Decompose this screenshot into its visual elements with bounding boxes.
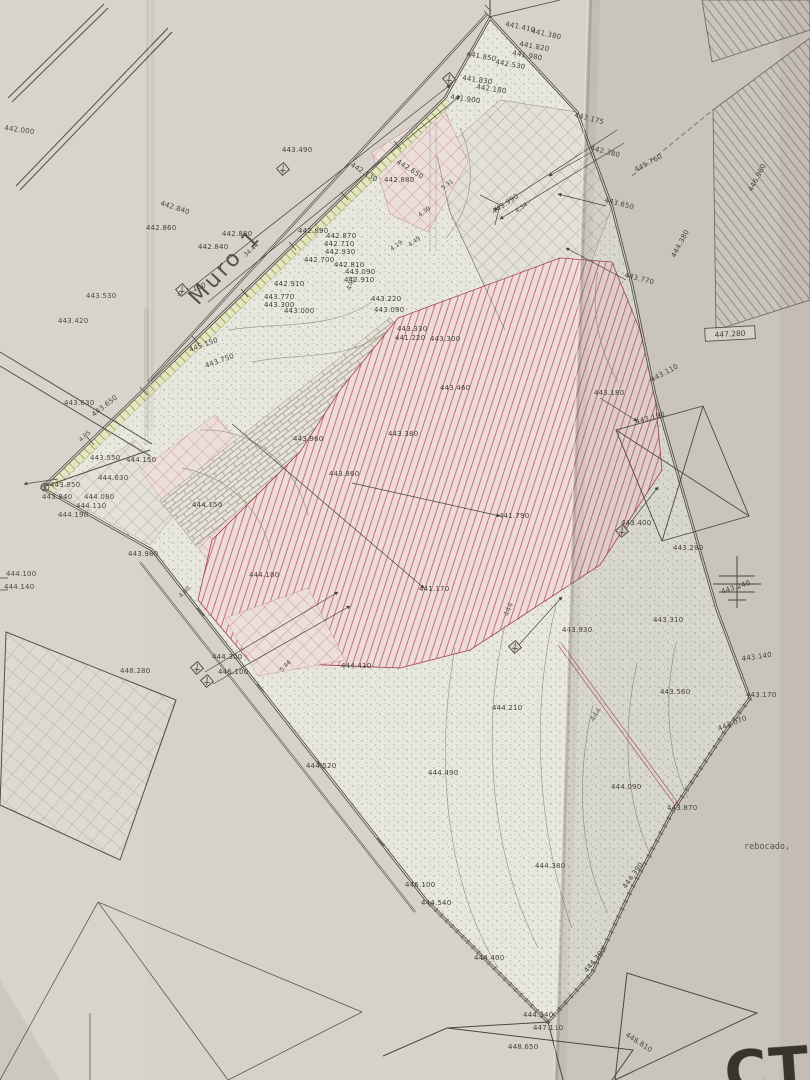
elevation-label: 443.860 [329, 470, 359, 478]
elevation-label: 442.910 [274, 280, 304, 288]
elevation-label: 443.300 [430, 335, 460, 343]
elevation-label: 441.790 [499, 512, 529, 520]
elevation-label: 444.400 [474, 954, 504, 962]
scanned-site-plan-photo: 447.280 [0, 0, 810, 1080]
elevation-label: 444.210 [492, 704, 522, 712]
elevation-label: 442.890 [298, 227, 328, 235]
elevation-label: 444.300 [212, 653, 242, 661]
elevation-label: 444.410 [341, 662, 371, 670]
elevation-label: 442.880 [384, 176, 414, 184]
elevation-label: 444.490 [428, 769, 458, 777]
elevation-label: 443.220 [371, 295, 401, 303]
elevation-label: 441.220 [395, 334, 425, 342]
elevation-label: 446.100 [218, 668, 248, 676]
elevation-label: 444.520 [306, 762, 336, 770]
elevation-label: 444.540 [421, 899, 451, 907]
elevation-label: 442.870 [326, 232, 356, 240]
elevation-label: 444.340 [523, 1011, 553, 1019]
elevation-label: 443.770 [264, 293, 294, 301]
elevation-label: 442.700 [304, 256, 334, 264]
elevation-label: 441.170 [419, 585, 449, 593]
elevation-label: 448.650 [508, 1043, 538, 1051]
elevation-label: 443.380 [388, 430, 418, 438]
elevation-label: 443.090 [345, 268, 375, 276]
elevation-label: 444.180 [249, 571, 279, 579]
site-plan-svg: 447.280 [0, 0, 810, 1080]
elevation-label: 442.930 [325, 248, 355, 256]
elevation-label: 443.330 [397, 325, 427, 333]
elevation-label: 446.100 [405, 881, 435, 889]
elevation-label: 444.150 [192, 501, 222, 509]
elevation-label: 443.460 [440, 384, 470, 392]
elevation-label: 443.490 [282, 146, 312, 154]
elevation-label: 443.090 [374, 306, 404, 314]
elevation-label: 442.710 [324, 240, 354, 248]
elevation-label: 443.960 [293, 435, 323, 443]
elevation-label: 443.000 [284, 307, 314, 315]
